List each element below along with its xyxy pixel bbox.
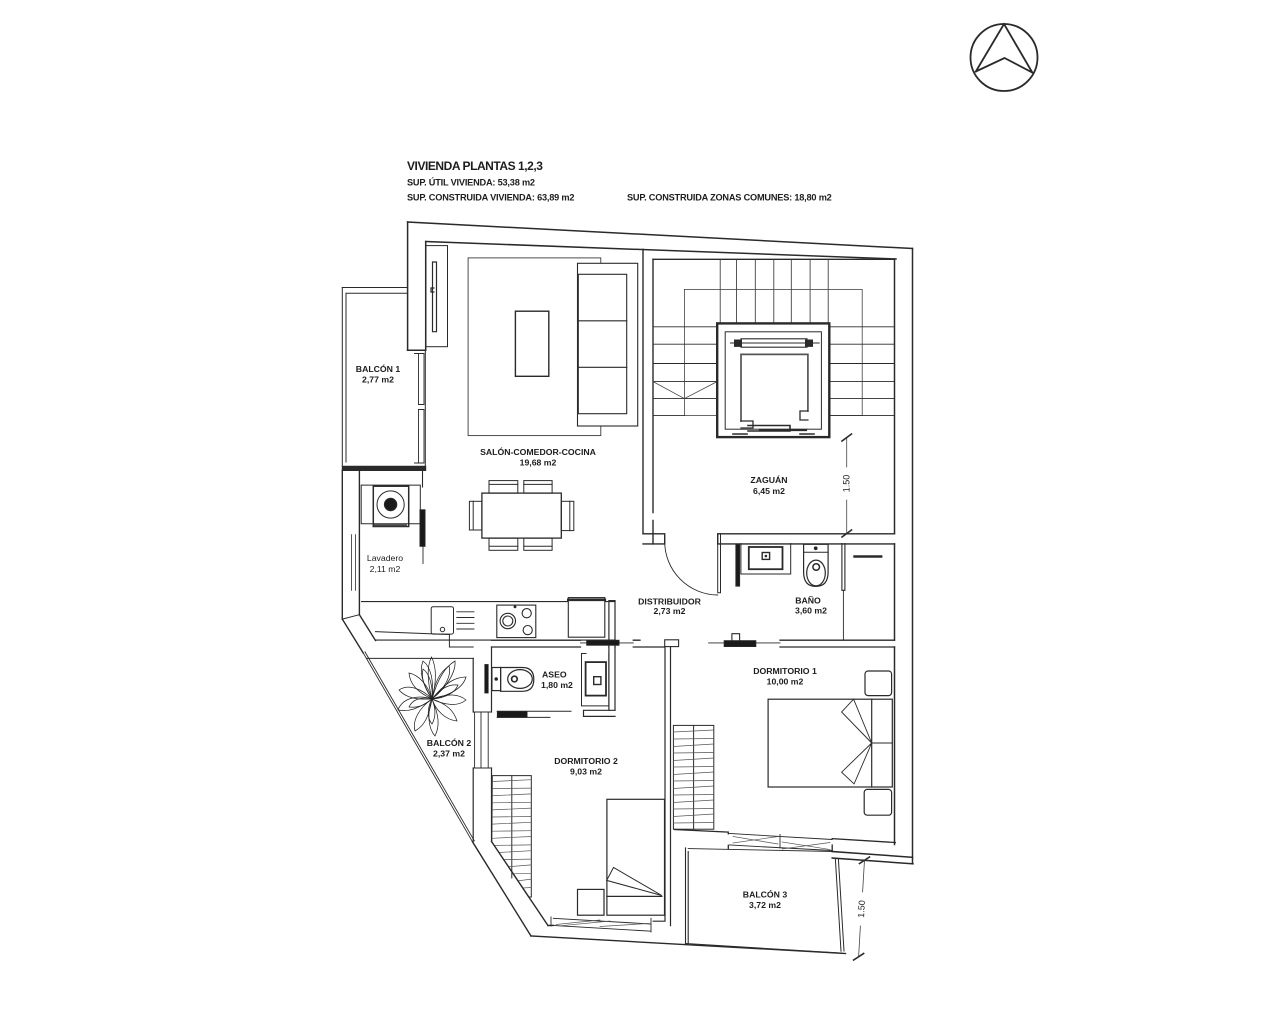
svg-text:1.50: 1.50 [856, 900, 867, 918]
svg-text:SALÓN-COMEDOR-COCINA: SALÓN-COMEDOR-COCINA [480, 446, 597, 457]
svg-text:9,03 m2: 9,03 m2 [570, 767, 602, 777]
svg-text:BALCÓN 2: BALCÓN 2 [427, 737, 472, 748]
svg-text:SUP. CONSTRUIDA ZONAS COMUNES:: SUP. CONSTRUIDA ZONAS COMUNES: 18,80 m2 [627, 193, 832, 203]
svg-text:ZAGUÁN: ZAGUÁN [750, 475, 787, 485]
svg-text:3,72 m2: 3,72 m2 [749, 900, 781, 910]
svg-text:SUP. ÚTIL VIVIENDA: 53,38 m2: SUP. ÚTIL VIVIENDA: 53,38 m2 [407, 177, 535, 188]
svg-text:6,45 m2: 6,45 m2 [753, 486, 785, 496]
svg-text:SUP. CONSTRUIDA VIVIENDA: 63,8: SUP. CONSTRUIDA VIVIENDA: 63,89 m2 [407, 193, 574, 203]
svg-text:DISTRIBUIDOR: DISTRIBUIDOR [638, 597, 701, 607]
svg-text:19,68 m2: 19,68 m2 [520, 458, 557, 468]
svg-text:BAÑO: BAÑO [795, 596, 821, 606]
svg-text:ASEO: ASEO [542, 670, 567, 680]
svg-text:2,73 m2: 2,73 m2 [654, 606, 686, 616]
svg-text:2,11 m2: 2,11 m2 [370, 564, 401, 574]
svg-text:1,80 m2: 1,80 m2 [541, 680, 573, 690]
svg-text:1.50: 1.50 [842, 475, 852, 493]
svg-text:BALCÓN 3: BALCÓN 3 [743, 889, 788, 900]
svg-text:DORMITORIO 2: DORMITORIO 2 [554, 756, 618, 766]
svg-text:2,77 m2: 2,77 m2 [362, 375, 394, 385]
svg-text:BALCÓN 1: BALCÓN 1 [356, 363, 401, 374]
svg-text:Lavadero: Lavadero [367, 553, 403, 563]
svg-text:VIVIENDA PLANTAS 1,2,3: VIVIENDA PLANTAS 1,2,3 [407, 159, 543, 173]
svg-text:2,37 m2: 2,37 m2 [433, 749, 465, 759]
svg-text:DORMITORIO 1: DORMITORIO 1 [753, 666, 817, 676]
svg-text:3,60 m2: 3,60 m2 [795, 606, 827, 616]
svg-text:10,00 m2: 10,00 m2 [767, 677, 804, 687]
